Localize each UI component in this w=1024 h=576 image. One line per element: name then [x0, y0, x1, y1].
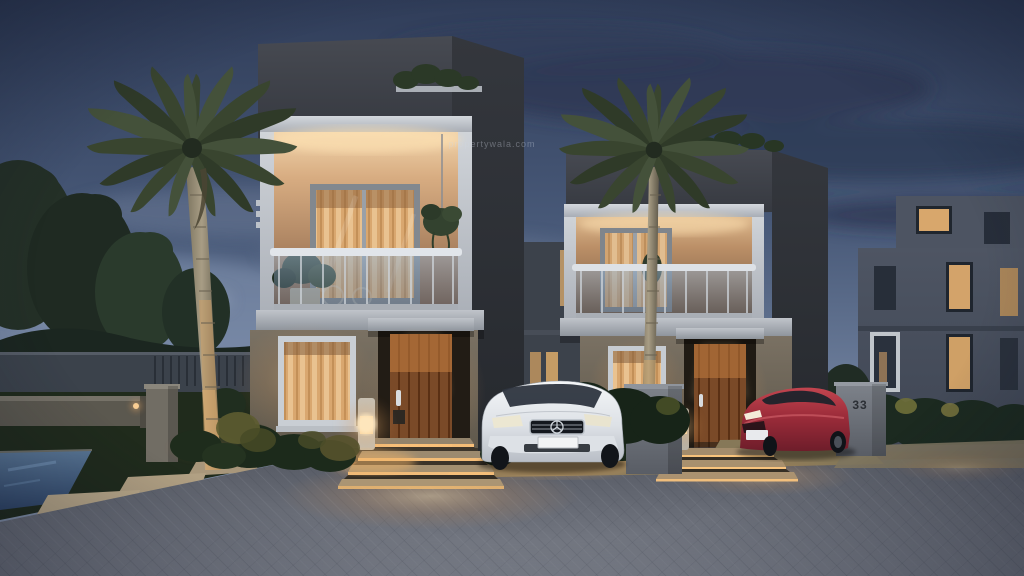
vignette — [0, 0, 1024, 576]
watermark: propertywala.com — [448, 139, 535, 149]
dusk-villa-rendering: 33 34 — [0, 0, 1024, 576]
